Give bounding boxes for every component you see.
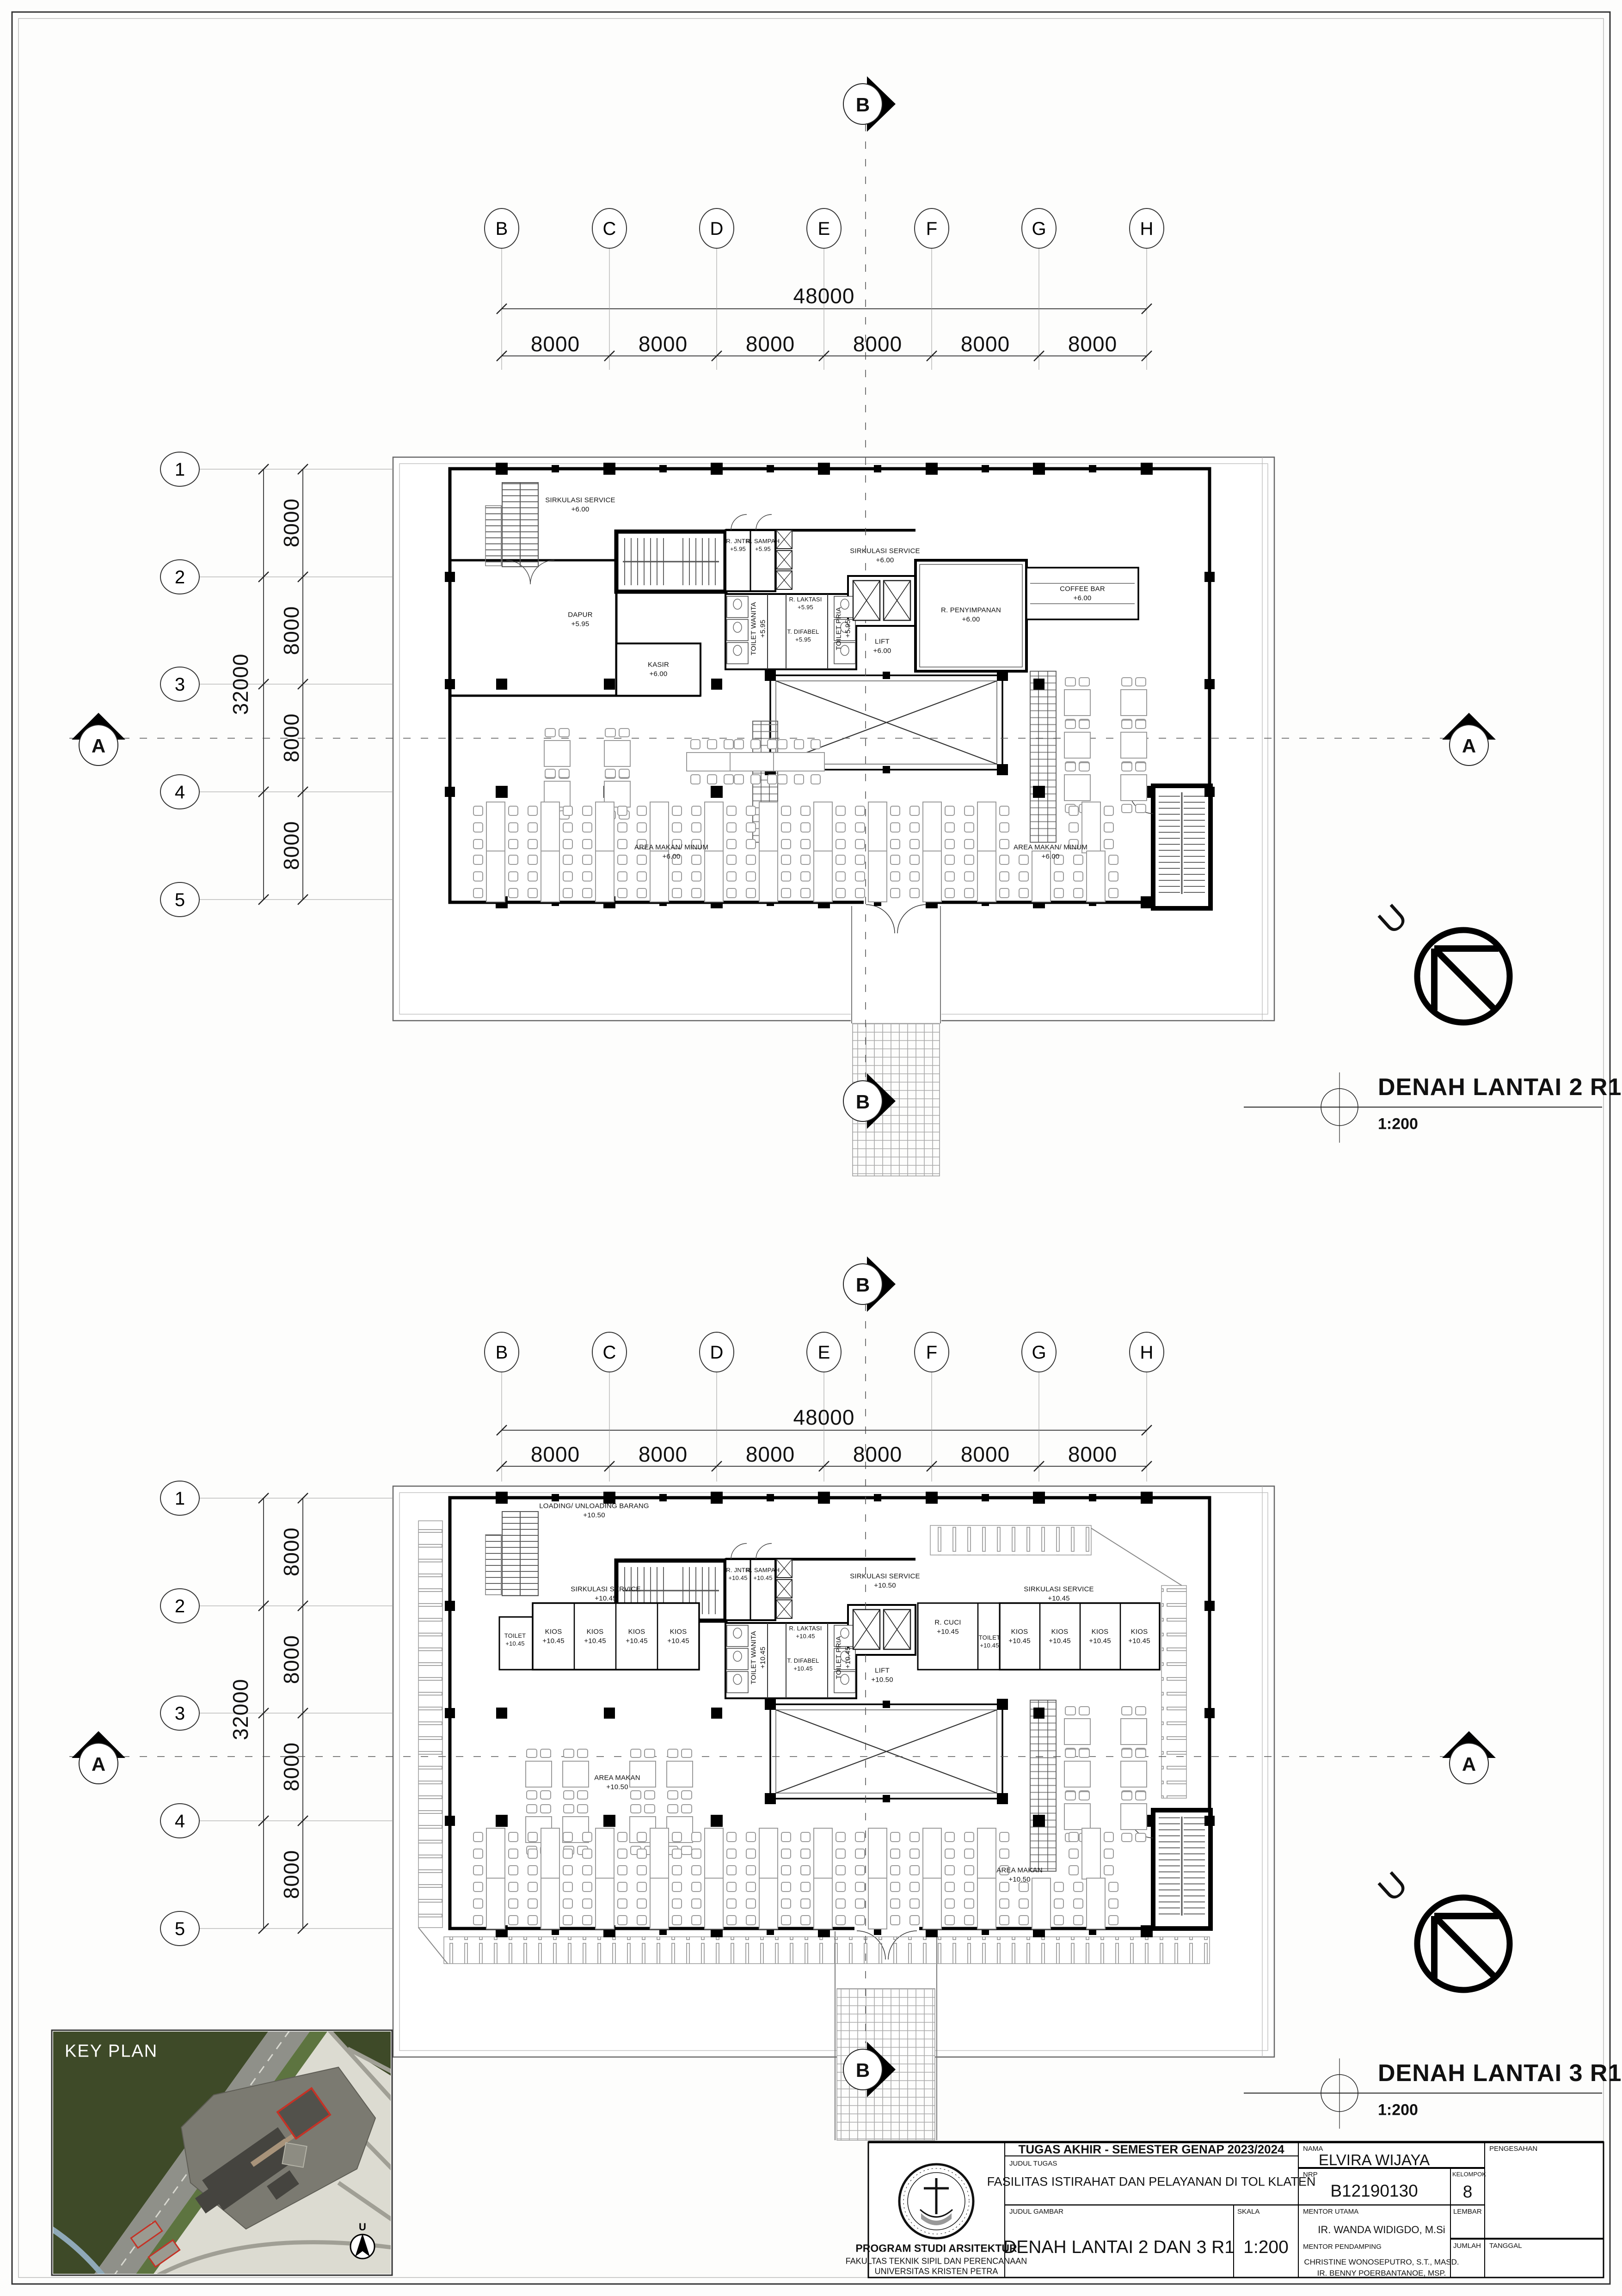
room-toilet-wanita-l2: TOILET WANITA+5.95 [750,602,768,655]
column [883,1701,890,1708]
dining-furniture [692,1878,736,1929]
dining-furniture [746,1878,791,1929]
dining-furniture [910,1878,954,1929]
room-area-makan-l2: AREA MAKAN/ MINUM+6.00 [634,843,708,861]
column [1033,679,1044,690]
column [1204,572,1215,582]
grid-bubble-letter: D [710,219,724,239]
room-lift-l2: LIFT+6.00 [873,637,891,655]
dim-seg: 8000 [279,821,304,870]
section-letter-a: A [92,735,105,757]
label-kelompok: KELOMPOK [1452,2171,1486,2178]
dining-furniture [853,581,880,620]
void-l3 [770,1704,1002,1799]
dining-furniture [583,851,627,902]
column [767,465,774,472]
room-toilet-wanita-l3: TOILET WANITA+10.45 [750,1631,768,1684]
label-mentor-utama: MENTOR UTAMA [1303,2208,1358,2216]
column [926,463,938,475]
room-difabel-l3: T. DIFABEL+10.45 [787,1657,819,1673]
section-letter-b: B [856,1091,870,1113]
dim-seg: 8000 [961,1442,1010,1467]
value-nama: ELVIRA WIJAYA [1319,2151,1430,2169]
dining-furniture [776,1580,792,1598]
keyplan-label: KEY PLAN [65,2042,158,2062]
institution-line2: FAKULTAS TEKNIK SIPIL DAN PERENCANAAN [846,2257,1027,2266]
grid-bubble-letter: D [710,1342,724,1363]
value-mentor-pendamping-2: IR. BENNY POERBANTANOE, MSP. [1317,2269,1446,2278]
titleblock-header: TUGAS AKHIR - SEMESTER GENAP 2023/2024 [1018,2143,1284,2157]
column [1089,1494,1096,1501]
column [659,465,667,472]
column [1033,463,1045,475]
value-kelompok: 8 [1463,2182,1473,2202]
room-laktasi-l3: R. LAKTASI+10.45 [789,1625,822,1641]
dim-seg: 8000 [279,1850,304,1899]
room-sirkulasi-service-l3: SIRKULASI SERVICE+10.50 [850,1572,920,1590]
column [818,463,830,475]
dim-total-vertical-l3: 32000 [228,1679,253,1740]
grid-bubble-letter: 5 [175,1919,185,1939]
plan-title-l3: DENAH LANTAI 3 R1 [1378,2059,1622,2087]
dim-seg: 8000 [1068,1442,1117,1467]
dim-seg: 8000 [531,331,580,356]
keyplan-north-letter: U [359,2221,366,2233]
column [496,679,507,690]
plan-scale-l3: 1:200 [1378,2101,1418,2119]
grid-bubble-letter: 1 [175,1488,185,1509]
dining-furniture [528,1878,572,1929]
dim-total-horizontal-l3: 48000 [793,1405,855,1430]
dining-furniture [965,802,1009,853]
keyplan-compass [350,2234,375,2259]
value-judul-gambar: DENAH LANTAI 2 DAN 3 R1 [1003,2237,1235,2258]
grid-bubble-letter: E [818,219,830,239]
value-nrp: B12190130 [1330,2181,1418,2201]
label-skala: SKALA [1237,2208,1260,2216]
room-area-makan-l3: AREA MAKAN+10.50 [594,1774,640,1792]
room-kios-l3: KIOS+10.45 [1128,1628,1150,1646]
dining-furniture [910,802,954,853]
dining-furniture [746,802,791,853]
column [1033,1815,1045,1827]
plan-scale-l2: 1:200 [1378,1115,1418,1133]
column [883,766,890,773]
dining-furniture [965,851,1009,902]
column [445,1601,455,1611]
column [496,1815,508,1827]
dining-furniture [801,802,845,853]
grid-bubble-letter: 3 [175,1703,185,1724]
column [445,572,455,582]
column [765,1699,776,1710]
dim-total-vertical-l2: 32000 [228,654,253,715]
room-sampah-l3: R. SAMPAH+10.45 [746,1567,780,1582]
dim-seg: 8000 [279,1742,304,1791]
sheet-linework: BCDEFGH12345BCDEFGH12345 [0,0,1622,2296]
column [711,1492,723,1504]
column [926,1492,938,1504]
section-letter-b: B [856,2059,870,2082]
column [1141,463,1153,475]
room-lift-l3: LIFT+10.50 [871,1666,893,1684]
dining-furniture [965,1878,1009,1929]
column [1141,1925,1153,1937]
grid-bubble-letter: B [496,1342,508,1363]
grid-bubble-letter: B [496,219,508,239]
column [604,679,615,690]
grid-bubble-letter: H [1140,219,1154,239]
grid-bubble-letter: 1 [175,459,185,480]
column [711,786,723,798]
dim-seg: 8000 [746,331,795,356]
dining-furniture [727,1671,748,1693]
section-letter-b: B [856,94,870,116]
dining-furniture [473,1878,518,1929]
dining-furniture [637,1828,682,1879]
room-sirkulasi-service-l2: SIRKULASI SERVICE+6.00 [850,547,920,565]
column [982,1494,989,1501]
column [997,1793,1008,1804]
room-kios-l3: KIOS+10.45 [542,1628,565,1646]
grid-bubble-letter: F [926,1342,937,1363]
column [604,1708,615,1719]
label-tanggal: TANGGAL [1489,2242,1522,2250]
institution-line3: UNIVERSITAS KRISTEN PETRA [875,2267,998,2277]
column [1141,896,1153,908]
north-arrow-l3 [1417,1898,1510,1990]
room-cuci-l3: R. CUCI+10.45 [934,1618,961,1636]
column [659,1494,667,1501]
column [997,670,1008,681]
grid-bubble-letter: 4 [175,1811,185,1831]
column [1033,786,1045,798]
value-mentor-pendamping-1: CHRISTINE WONOSEPUTRO, S.T., MASD. [1304,2258,1459,2267]
institution-line1: PROGRAM STUDI ARSITEKTUR [855,2242,1017,2255]
column [883,1795,890,1802]
dining-furniture [855,802,900,853]
room-kios-l3: KIOS+10.45 [626,1628,648,1646]
dining-furniture [727,643,748,664]
grid-bubble-letter: C [603,1342,616,1363]
architectural-sheet: { "sheet": { "key_plan_label": "KEY PLAN… [0,0,1622,2296]
column [711,1815,723,1827]
room-area-makan-l3: AREA MAKAN+10.50 [996,1866,1043,1884]
column [552,465,559,472]
column [496,463,508,475]
dining-furniture [528,802,572,853]
escalator-l3 [1030,1700,1056,1871]
dining-furniture [528,851,572,902]
dining-furniture [473,851,518,902]
grid-bubble-letter: 3 [175,674,185,695]
room-toilet-pria-l3: TOILET PRIA+10.45 [835,1636,853,1679]
dining-furniture [1019,1878,1063,1929]
dining-furniture [855,851,900,902]
dining-furniture [637,1878,682,1929]
dining-furniture [727,596,748,618]
dim-seg: 8000 [279,1635,304,1684]
room-kios-l3: KIOS+10.45 [584,1628,606,1646]
dining-furniture [583,1878,627,1929]
dining-furniture [727,619,748,641]
dim-total-horizontal-l2: 48000 [793,283,855,308]
dining-furniture [473,1828,518,1879]
dining-furniture [910,1828,954,1879]
column [997,1699,1008,1710]
room-toilet-right-l3: TOILET+10.45 [979,1634,1000,1650]
room-kios-l3: KIOS+10.45 [1049,1628,1071,1646]
column [1204,1601,1215,1611]
room-kios-l3: KIOS+10.45 [1008,1628,1031,1646]
column [552,1494,559,1501]
room-sampah-l2: R. SAMPAH+5.95 [746,538,780,553]
dining-furniture [776,551,792,569]
column [767,1494,774,1501]
grid-bubble-letter: F [926,219,937,239]
column [874,1494,881,1501]
column [711,463,723,475]
label-jumlah: JUMLAH [1453,2242,1481,2250]
key-plan [52,2030,392,2275]
room-kios-l3: KIOS+10.45 [1089,1628,1111,1646]
room-kios-l3: KIOS+10.45 [667,1628,689,1646]
dining-furniture [855,1828,900,1879]
dining-furniture [746,851,791,902]
dim-seg: 8000 [279,606,304,655]
value-mentor-utama: IR. WANDA WIDIGDO, M.Si [1318,2224,1445,2236]
room-sirkulasi-service-l3: SIRKULASI SERVICE+10.45 [1024,1585,1094,1603]
dining-furniture [746,1828,791,1879]
column [1204,1816,1215,1826]
floor-plan-lantai-2 [393,457,1274,1176]
grid-bubble-letter: 5 [175,890,185,910]
column [765,670,776,681]
dim-seg: 8000 [639,331,688,356]
grid-bubble-letter: G [1032,219,1046,239]
dining-furniture [1074,1878,1118,1929]
column [711,1708,722,1719]
room-difabel-l2: T. DIFABEL+5.95 [787,628,819,644]
section-letter-a: A [1462,1753,1476,1776]
room-loading-l3: LOADING/ UNLOADING BARANG+10.50 [539,1502,649,1520]
grid-bubble-letter: 2 [175,567,185,588]
column [603,1815,615,1827]
column [818,1492,830,1504]
room-penyimpanan-l2: R. PENYIMPANAN+6.00 [941,606,1001,624]
column [982,465,989,472]
column [874,465,881,472]
column [445,679,455,689]
grid-bubble-letter: 4 [175,782,185,802]
dining-furniture [853,1610,880,1649]
label-judul-gambar: JUDUL GAMBAR [1009,2208,1063,2216]
dining-furniture [1069,1828,1113,1879]
column [1141,1492,1153,1504]
dining-furniture [801,851,845,902]
dining-furniture [801,1828,845,1879]
column [1204,787,1215,797]
dining-furniture [473,802,518,853]
dim-seg: 8000 [639,1442,688,1467]
column [496,1492,508,1504]
column [765,1793,776,1804]
value-judul-tugas: FASILITAS ISTIRAHAT DAN PELAYANAN DI TOL… [987,2175,1316,2189]
room-kasir-l2: KASIR+6.00 [648,661,669,679]
dim-seg: 8000 [279,713,304,762]
dining-furniture [776,571,792,589]
dining-furniture [528,1828,572,1879]
grid-bubble-letter: C [603,219,616,239]
dim-seg: 8000 [853,1442,902,1467]
dim-seg: 8000 [531,1442,580,1467]
column [1204,1708,1215,1718]
section-letter-b: B [856,1274,870,1296]
column [997,764,1008,775]
column [496,1708,507,1719]
grid-bubble-letter: E [818,1342,830,1363]
label-judul-tugas: JUDUL TUGAS [1009,2160,1057,2167]
label-lembar: LEMBAR [1453,2208,1482,2216]
room-toilet-pria-l2: TOILET PRIA+5.95 [835,607,853,650]
room-area-makan-l2: AREA MAKAN/ MINUM+6.00 [1014,843,1087,861]
plan-title-l2: DENAH LANTAI 2 R1 [1378,1073,1622,1101]
dining-furniture [583,1828,627,1879]
column [445,787,455,797]
column [1033,1708,1044,1719]
room-toilet-left-l3: TOILET+10.45 [504,1632,526,1648]
north-arrow-l2 [1417,930,1510,1022]
dim-seg: 8000 [1068,331,1117,356]
label-pengesahan: PENGESAHAN [1489,2145,1537,2153]
dim-seg: 8000 [746,1442,795,1467]
dining-furniture [583,802,627,853]
column [496,786,508,798]
room-sirkulasi-service-l2: SIRKULASI SERVICE+6.00 [545,496,615,514]
dining-furniture [910,851,954,902]
section-letter-a: A [92,1753,105,1776]
room-dapur-l2: DAPUR+5.95 [568,611,593,629]
grid-bubble-letter: G [1032,1342,1046,1363]
column [603,463,615,475]
dim-seg: 8000 [961,331,1010,356]
dining-furniture [727,1625,748,1647]
dining-furniture [774,740,824,784]
dining-furniture [855,1878,900,1929]
dining-furniture [776,1600,792,1618]
dining-furniture [692,1828,736,1879]
dining-furniture [884,581,910,620]
room-coffee-bar-l2: COFFEE BAR+6.00 [1060,585,1105,603]
dim-seg: 8000 [279,498,304,547]
section-letter-a: A [1462,735,1476,757]
dining-furniture [727,1648,748,1670]
label-mentor-pendamping: MENTOR PENDAMPING [1303,2243,1382,2251]
column [445,1708,455,1718]
column [711,679,722,690]
grid-bubble-letter: 2 [175,1596,185,1616]
room-sirkulasi-service-l3: SIRKULASI SERVICE+10.45 [571,1585,641,1603]
column [1204,679,1215,689]
column [1033,1492,1045,1504]
grid-bubble-letter: H [1140,1342,1154,1363]
column [883,672,890,679]
value-skala: 1:200 [1243,2237,1289,2258]
dining-furniture [801,1878,845,1929]
dim-seg: 8000 [279,1527,304,1576]
dining-furniture [884,1610,910,1649]
label-nrp: NRP [1303,2171,1318,2179]
column [445,1816,455,1826]
room-laktasi-l2: R. LAKTASI+5.95 [789,596,822,612]
column [1089,465,1096,472]
dim-seg: 8000 [853,331,902,356]
